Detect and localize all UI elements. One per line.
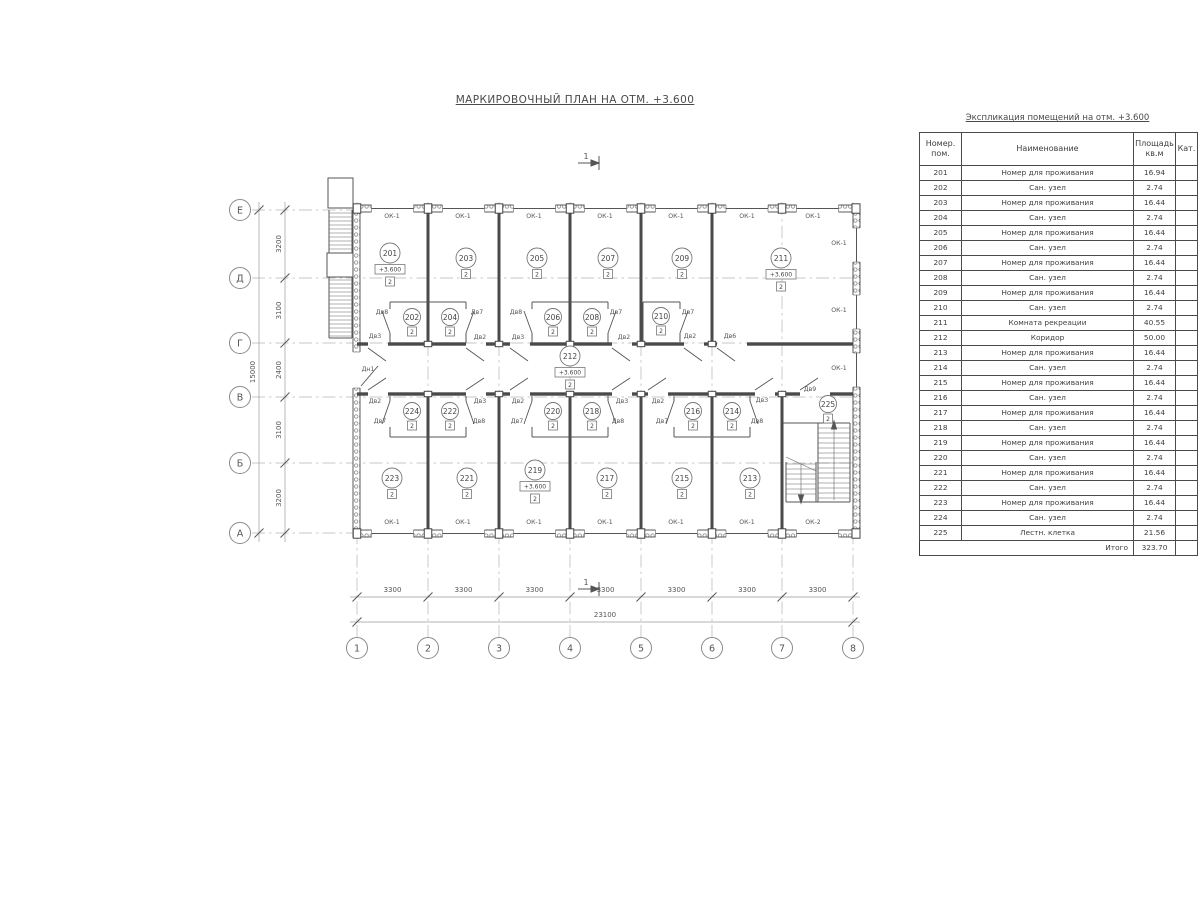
svg-text:6: 6 [709, 643, 715, 654]
svg-text:218: 218 [585, 407, 600, 416]
table-cell: Сан. узел [962, 241, 1134, 256]
svg-text:Дв2: Дв2 [652, 398, 664, 405]
table-cell: 50.00 [1134, 331, 1176, 346]
svg-text:220: 220 [546, 407, 561, 416]
svg-text:ОК-1: ОК-1 [526, 213, 541, 220]
svg-text:3200: 3200 [275, 235, 283, 253]
table-cell [1176, 346, 1198, 361]
svg-text:203: 203 [459, 254, 474, 263]
room-mark: 2052 [527, 248, 547, 279]
svg-text:2400: 2400 [275, 361, 283, 379]
room-mark: 2212 [457, 468, 477, 499]
table-cell: 2.74 [1134, 301, 1176, 316]
svg-text:212: 212 [563, 352, 578, 361]
table-row: 202Сан. узел2.74 [920, 181, 1198, 196]
svg-text:+3.600: +3.600 [559, 370, 581, 377]
svg-text:219: 219 [528, 466, 543, 475]
table-total-row: Итого 323.70 [920, 541, 1198, 556]
table-cell: 223 [920, 496, 962, 511]
table-cell [1176, 331, 1198, 346]
svg-text:8: 8 [850, 643, 856, 654]
room-mark: 2072 [598, 248, 618, 279]
svg-text:2: 2 [730, 423, 734, 430]
col-header-number: Номер. пом. [920, 133, 962, 166]
room-mark: 2132 [740, 468, 760, 499]
table-cell [1176, 421, 1198, 436]
table-cell: 16.44 [1134, 466, 1176, 481]
room-mark: 211+3.6002 [766, 248, 796, 291]
room-mark: 219+3.6002 [520, 460, 550, 503]
svg-text:2: 2 [410, 329, 414, 336]
svg-text:214: 214 [725, 407, 740, 416]
svg-text:Дв3: Дв3 [756, 397, 768, 404]
table-cell: Сан. узел [962, 481, 1134, 496]
table-cell: 2.74 [1134, 211, 1176, 226]
svg-text:+3.600: +3.600 [379, 267, 401, 274]
table-cell: 2.74 [1134, 511, 1176, 526]
room-mark: 212+3.6002 [555, 346, 585, 389]
table-cell: 2.74 [1134, 361, 1176, 376]
svg-text:1: 1 [583, 578, 588, 587]
explication-table: Номер. пом. Наименование Площадь кв.м Ка… [919, 132, 1198, 556]
table-cell: Номер для проживания [962, 346, 1134, 361]
svg-text:Дв3: Дв3 [512, 334, 524, 341]
table-cell: Коридор [962, 331, 1134, 346]
table-row: 205Номер для проживания16.44 [920, 226, 1198, 241]
svg-text:ОК-2: ОК-2 [805, 519, 820, 526]
table-cell [1176, 361, 1198, 376]
table-cell: Номер для проживания [962, 406, 1134, 421]
table-cell [1176, 226, 1198, 241]
table-cell: 16.44 [1134, 376, 1176, 391]
table-cell: 2.74 [1134, 271, 1176, 286]
table-cell: Сан. узел [962, 421, 1134, 436]
table-cell: 209 [920, 286, 962, 301]
table-header-row: Номер. пом. Наименование Площадь кв.м Ка… [920, 133, 1198, 166]
table-cell: 16.44 [1134, 256, 1176, 271]
svg-text:3300: 3300 [668, 586, 686, 594]
table-cell: Сан. узел [962, 511, 1134, 526]
room-mark: 2062 [545, 309, 562, 337]
svg-text:ОК-1: ОК-1 [805, 213, 820, 220]
svg-text:2: 2 [464, 272, 468, 279]
table-cell: Сан. узел [962, 181, 1134, 196]
table-cell: 220 [920, 451, 962, 466]
room-mark: 2102 [653, 308, 670, 336]
table-cell: 204 [920, 211, 962, 226]
table-cell: Номер для проживания [962, 496, 1134, 511]
table-cell: 202 [920, 181, 962, 196]
svg-text:Д: Д [236, 273, 243, 284]
svg-text:4: 4 [567, 643, 573, 654]
svg-text:2: 2 [535, 272, 539, 279]
svg-text:3300: 3300 [809, 586, 827, 594]
svg-text:2: 2 [448, 329, 452, 336]
room-mark: 2142 [724, 403, 741, 431]
table-cell: Номер для проживания [962, 196, 1134, 211]
svg-text:2: 2 [590, 423, 594, 430]
svg-text:ОК-1: ОК-1 [455, 519, 470, 526]
svg-text:2: 2 [425, 643, 431, 654]
svg-text:2: 2 [659, 328, 663, 335]
table-cell: Сан. узел [962, 211, 1134, 226]
svg-text:Дв8: Дв8 [612, 418, 624, 425]
svg-text:2: 2 [568, 382, 572, 389]
svg-text:3300: 3300 [455, 586, 473, 594]
svg-text:2: 2 [590, 329, 594, 336]
table-cell: 40.55 [1134, 316, 1176, 331]
table-cell: 222 [920, 481, 962, 496]
table-cell: 208 [920, 271, 962, 286]
svg-text:215: 215 [675, 474, 690, 483]
svg-text:3300: 3300 [384, 586, 402, 594]
svg-text:3300: 3300 [526, 586, 544, 594]
table-cell: 16.44 [1134, 226, 1176, 241]
room-mark: 2242 [404, 403, 421, 431]
table-cell [1176, 256, 1198, 271]
table-cell [1176, 376, 1198, 391]
svg-text:ОК-1: ОК-1 [455, 213, 470, 220]
table-cell: Сан. узел [962, 451, 1134, 466]
table-row: 217Номер для проживания16.44 [920, 406, 1198, 421]
drawing-sheet: 3300330033003300330033003300231003200310… [0, 0, 1200, 900]
axis-grid [252, 202, 862, 637]
plan-title: МАРКИРОВОЧНЫЙ ПЛАН НА ОТМ. +3.600 [380, 94, 770, 106]
svg-text:ОК-1: ОК-1 [526, 519, 541, 526]
room-mark: 2082 [584, 309, 601, 337]
table-row: 212Коридор50.00 [920, 331, 1198, 346]
table-cell: Сан. узел [962, 301, 1134, 316]
svg-text:ОК-1: ОК-1 [668, 213, 683, 220]
table-row: 222Сан. узел2.74 [920, 481, 1198, 496]
room-mark: 2182 [584, 403, 601, 431]
svg-text:Г: Г [237, 338, 243, 349]
table-row: 208Сан. узел2.74 [920, 271, 1198, 286]
table-cell: 215 [920, 376, 962, 391]
table-cell: Номер для проживания [962, 256, 1134, 271]
table-cell: 221 [920, 466, 962, 481]
svg-text:211: 211 [774, 254, 789, 263]
svg-text:Дв2: Дв2 [474, 334, 486, 341]
table-cell: 2.74 [1134, 451, 1176, 466]
svg-text:ОК-1: ОК-1 [739, 519, 754, 526]
table-cell: 214 [920, 361, 962, 376]
svg-text:Дв2: Дв2 [684, 333, 696, 340]
svg-text:2: 2 [779, 284, 783, 291]
table-cell: 16.44 [1134, 286, 1176, 301]
table-row: 223Номер для проживания16.44 [920, 496, 1198, 511]
room-mark: 2252 [820, 396, 837, 424]
svg-text:2: 2 [448, 423, 452, 430]
svg-text:Дв7: Дв7 [682, 309, 694, 316]
svg-text:Дв7: Дв7 [610, 309, 622, 316]
table-cell: Номер для проживания [962, 376, 1134, 391]
table-row: 221Номер для проживания16.44 [920, 466, 1198, 481]
table-cell: 2.74 [1134, 241, 1176, 256]
svg-text:222: 222 [443, 407, 458, 416]
external-stair [327, 178, 353, 338]
svg-text:205: 205 [530, 254, 545, 263]
room-mark: 2172 [597, 468, 617, 499]
room-mark: 2232 [382, 468, 402, 499]
table-cell: Лестн. клетка [962, 526, 1134, 541]
svg-text:ОК-1: ОК-1 [831, 365, 846, 372]
table-cell: Сан. узел [962, 391, 1134, 406]
table-cell [1176, 496, 1198, 511]
table-cell: 16.44 [1134, 406, 1176, 421]
svg-text:23100: 23100 [594, 611, 616, 619]
svg-text:2: 2 [465, 492, 469, 499]
table-row: 218Сан. узел2.74 [920, 421, 1198, 436]
table-cell: Номер для проживания [962, 436, 1134, 451]
svg-text:2: 2 [826, 416, 830, 423]
table-cell: 203 [920, 196, 962, 211]
svg-text:202: 202 [405, 313, 420, 322]
table-cell: 218 [920, 421, 962, 436]
table-cell: 212 [920, 331, 962, 346]
table-row: 203Номер для проживания16.44 [920, 196, 1198, 211]
table-cell [1176, 196, 1198, 211]
svg-text:2: 2 [691, 423, 695, 430]
table-cell: 2.74 [1134, 481, 1176, 496]
table-cell [1176, 211, 1198, 226]
svg-text:223: 223 [385, 474, 400, 483]
table-row: 206Сан. узел2.74 [920, 241, 1198, 256]
svg-text:ОК-1: ОК-1 [597, 519, 612, 526]
svg-text:2: 2 [551, 329, 555, 336]
explication-title: Экспликация помещений на отм. +3.600 [917, 113, 1198, 123]
table-row: 216Сан. узел2.74 [920, 391, 1198, 406]
svg-text:2: 2 [410, 423, 414, 430]
svg-text:2: 2 [748, 492, 752, 499]
col-header-name: Наименование [962, 133, 1134, 166]
table-cell: 2.74 [1134, 181, 1176, 196]
table-cell [1176, 286, 1198, 301]
svg-text:2: 2 [606, 272, 610, 279]
room-mark: 201+3.6002 [375, 243, 405, 286]
svg-text:Дв7: Дв7 [656, 418, 668, 425]
svg-text:ОК-1: ОК-1 [597, 213, 612, 220]
table-cell: 201 [920, 166, 962, 181]
table-cell: Сан. узел [962, 271, 1134, 286]
svg-text:207: 207 [601, 254, 616, 263]
svg-text:2: 2 [388, 279, 392, 286]
table-cell [1176, 526, 1198, 541]
table-cell: 2.74 [1134, 391, 1176, 406]
svg-text:15000: 15000 [249, 361, 257, 383]
room-mark: 2152 [672, 468, 692, 499]
table-row: 220Сан. узел2.74 [920, 451, 1198, 466]
table-cell [1176, 451, 1198, 466]
svg-text:Дв6: Дв6 [724, 333, 736, 340]
table-cell: Номер для проживания [962, 166, 1134, 181]
svg-text:3300: 3300 [738, 586, 756, 594]
table-cell [1176, 466, 1198, 481]
total-label: Итого [920, 541, 1134, 556]
svg-text:217: 217 [600, 474, 615, 483]
svg-text:ОК-1: ОК-1 [384, 519, 399, 526]
svg-text:213: 213 [743, 474, 758, 483]
svg-text:206: 206 [546, 313, 561, 322]
table-row: 225Лестн. клетка21.56 [920, 526, 1198, 541]
svg-text:Дв7: Дв7 [511, 418, 523, 425]
table-cell [1176, 406, 1198, 421]
table-cell: 16.44 [1134, 346, 1176, 361]
svg-text:ОК-1: ОК-1 [831, 307, 846, 314]
room-mark: 2222 [442, 403, 459, 431]
svg-text:+3.600: +3.600 [524, 484, 546, 491]
table-cell: 21.56 [1134, 526, 1176, 541]
table-cell [1176, 391, 1198, 406]
table-cell [1176, 511, 1198, 526]
table-cell: 206 [920, 241, 962, 256]
table-cell: Номер для проживания [962, 286, 1134, 301]
table-cell [1176, 316, 1198, 331]
table-cell [1176, 481, 1198, 496]
svg-text:Дв9: Дв9 [804, 386, 816, 393]
svg-text:201: 201 [383, 249, 398, 258]
svg-text:Дв2: Дв2 [369, 398, 381, 405]
axis-bubbles: ЕДГВБА12345678 [230, 200, 864, 659]
table-cell: 216 [920, 391, 962, 406]
table-cell: 210 [920, 301, 962, 316]
svg-text:208: 208 [585, 313, 600, 322]
svg-text:Дв8: Дв8 [510, 309, 522, 316]
svg-text:Дв7: Дв7 [374, 418, 386, 425]
table-cell: 16.44 [1134, 436, 1176, 451]
table-row: 210Сан. узел2.74 [920, 301, 1198, 316]
table-cell: Номер для проживания [962, 466, 1134, 481]
svg-text:Дв3: Дв3 [474, 398, 486, 405]
table-row: 201Номер для проживания16.94 [920, 166, 1198, 181]
svg-text:Б: Б [237, 458, 244, 469]
table-row: 207Номер для проживания16.44 [920, 256, 1198, 271]
table-row: 224Сан. узел2.74 [920, 511, 1198, 526]
svg-text:А: А [237, 528, 244, 539]
table-row: 204Сан. узел2.74 [920, 211, 1198, 226]
svg-text:ОК-1: ОК-1 [384, 213, 399, 220]
table-cell: 224 [920, 511, 962, 526]
table-row: 209Номер для проживания16.44 [920, 286, 1198, 301]
table-cell: 217 [920, 406, 962, 421]
table-cell: Номер для проживания [962, 226, 1134, 241]
svg-text:Дв8: Дв8 [473, 418, 485, 425]
table-cell: 211 [920, 316, 962, 331]
table-cell [1176, 241, 1198, 256]
svg-text:ОК-1: ОК-1 [668, 519, 683, 526]
table-cell: 2.74 [1134, 421, 1176, 436]
table-cell [1176, 166, 1198, 181]
svg-text:Дв8: Дв8 [376, 309, 388, 316]
table-cell: 16.94 [1134, 166, 1176, 181]
svg-text:1: 1 [354, 643, 360, 654]
svg-text:Дв2: Дв2 [618, 334, 630, 341]
room-mark: 2092 [672, 248, 692, 279]
svg-text:1: 1 [583, 152, 588, 161]
table-cell: 219 [920, 436, 962, 451]
table-cell [1176, 181, 1198, 196]
svg-text:7: 7 [779, 643, 785, 654]
svg-text:3100: 3100 [275, 421, 283, 439]
table-cell [1176, 436, 1198, 451]
table-cell: Комната рекреации [962, 316, 1134, 331]
svg-text:2: 2 [680, 272, 684, 279]
col-header-area: Площадь кв.м [1134, 133, 1176, 166]
table-row: 211Комната рекреации40.55 [920, 316, 1198, 331]
room-mark: 2202 [545, 403, 562, 431]
svg-text:225: 225 [821, 400, 836, 409]
table-cell: 213 [920, 346, 962, 361]
svg-text:Дв3: Дв3 [616, 398, 628, 405]
svg-text:Дв2: Дв2 [512, 398, 524, 405]
svg-text:204: 204 [443, 313, 458, 322]
door-leaves [361, 348, 818, 390]
room-marks: 201+3.60022032205220722092211+3.60022022… [375, 243, 837, 503]
svg-text:2: 2 [680, 492, 684, 499]
svg-text:209: 209 [675, 254, 690, 263]
svg-text:Дв3: Дв3 [369, 333, 381, 340]
svg-text:ОК-1: ОК-1 [739, 213, 754, 220]
col-header-cat: Кат. [1176, 133, 1198, 166]
svg-text:2: 2 [605, 492, 609, 499]
svg-text:2: 2 [551, 423, 555, 430]
room-mark: 2162 [685, 403, 702, 431]
table-row: 213Номер для проживания16.44 [920, 346, 1198, 361]
svg-text:ОК-1: ОК-1 [831, 240, 846, 247]
room-mark: 2032 [456, 248, 476, 279]
room-mark: 2022 [404, 309, 421, 337]
table-cell: 16.44 [1134, 496, 1176, 511]
stairwell [783, 421, 850, 503]
room-mark: 2042 [442, 309, 459, 337]
table-cell: Сан. узел [962, 361, 1134, 376]
table-cell: 225 [920, 526, 962, 541]
svg-text:В: В [237, 392, 244, 403]
total-value: 323.70 [1134, 541, 1176, 556]
svg-text:Дв7: Дв7 [471, 309, 483, 316]
explication-block: Экспликация помещений на отм. +3.600 Ном… [917, 113, 1198, 556]
svg-text:2: 2 [390, 492, 394, 499]
table-cell: 205 [920, 226, 962, 241]
table-cell: 16.44 [1134, 196, 1176, 211]
table-row: 214Сан. узел2.74 [920, 361, 1198, 376]
svg-text:Е: Е [237, 205, 243, 216]
svg-text:210: 210 [654, 312, 669, 321]
svg-text:221: 221 [460, 474, 475, 483]
svg-text:2: 2 [533, 496, 537, 503]
svg-text:Дн1: Дн1 [362, 366, 375, 373]
svg-text:+3.600: +3.600 [770, 272, 792, 279]
svg-text:224: 224 [405, 407, 420, 416]
table-row: 215Номер для проживания16.44 [920, 376, 1198, 391]
table-cell: 207 [920, 256, 962, 271]
svg-text:5: 5 [638, 643, 644, 654]
svg-text:Дв8: Дв8 [751, 418, 763, 425]
svg-text:3200: 3200 [275, 489, 283, 507]
table-cell [1176, 271, 1198, 286]
table-row: 219Номер для проживания16.44 [920, 436, 1198, 451]
svg-text:3: 3 [496, 643, 502, 654]
svg-text:3100: 3100 [275, 302, 283, 320]
table-cell [1176, 301, 1198, 316]
svg-text:216: 216 [686, 407, 701, 416]
